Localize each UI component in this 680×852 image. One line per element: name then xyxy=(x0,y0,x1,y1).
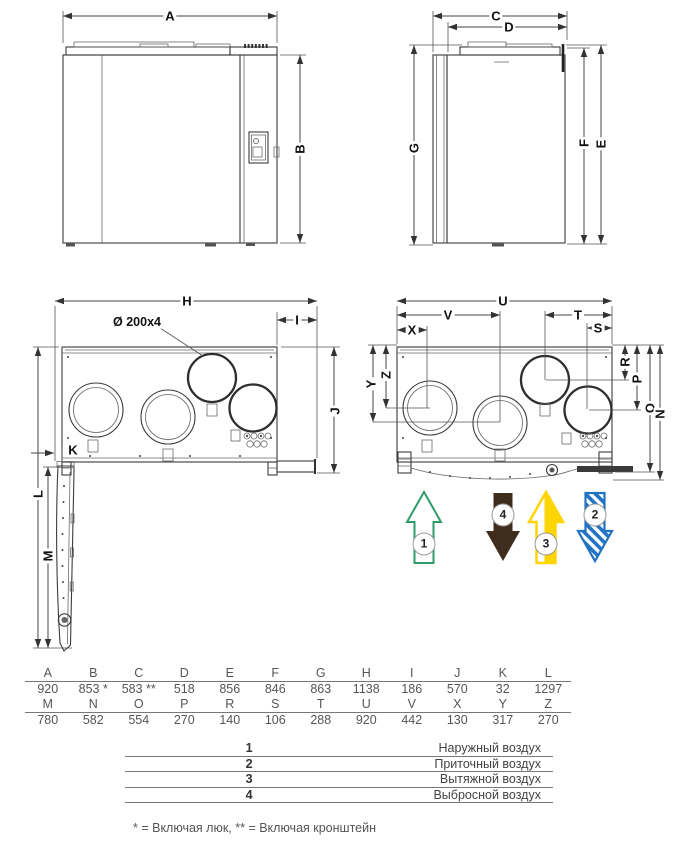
dim-label-f: F xyxy=(578,137,591,149)
legend-label: Выбросной воздух xyxy=(373,788,553,803)
dim-label-n: N xyxy=(654,407,667,420)
control-panel xyxy=(249,132,279,163)
dim-label-g: G xyxy=(408,141,421,155)
dimension-table: A B C D E F G H I J K L 920 853 * 583 **… xyxy=(25,666,571,728)
duct-size-label: Ø 200x4 xyxy=(111,316,163,329)
dim-letter: Y xyxy=(480,697,526,713)
dim-letter: F xyxy=(253,666,299,682)
dim-value: 920 xyxy=(344,713,390,729)
cable-grommets xyxy=(244,433,271,447)
dim-letter: M xyxy=(25,697,71,713)
bracket-flange xyxy=(277,461,315,472)
dim-letter: C xyxy=(116,666,162,682)
dim-value: 853 * xyxy=(71,682,117,698)
airflow-arrows xyxy=(407,492,612,563)
dim-value: 270 xyxy=(162,713,208,729)
dim-value: 920 xyxy=(25,682,71,698)
dim-label-s: S xyxy=(592,322,605,335)
dim-label-p: P xyxy=(631,373,644,386)
dim-letter: V xyxy=(389,697,435,713)
dim-label-e: E xyxy=(595,138,608,151)
dim-value-row: 920 853 * 583 ** 518 856 846 863 1138 18… xyxy=(25,682,571,698)
dim-label-d: D xyxy=(502,21,515,34)
dim-label-h: H xyxy=(180,295,193,308)
dim-letter: P xyxy=(162,697,208,713)
dim-letter: E xyxy=(207,666,253,682)
footnote: * = Включая люк, ** = Включая кронштейн xyxy=(133,821,376,835)
dim-letter: X xyxy=(435,697,481,713)
dim-value: 317 xyxy=(480,713,526,729)
dim-label-i: I xyxy=(293,314,301,327)
airflow-legend: 1 Наружный воздух 2 Приточный воздух 3 В… xyxy=(125,741,553,803)
airflow-number-1: 1 xyxy=(413,533,436,556)
legend-label: Приточный воздух xyxy=(373,757,553,772)
dim-letter: K xyxy=(480,666,526,682)
duct-leader-line xyxy=(160,328,203,356)
dim-letter: Z xyxy=(526,697,572,713)
legend-row: 4 Выбросной воздух xyxy=(125,788,553,804)
dim-letter: S xyxy=(253,697,299,713)
dim-label-c: C xyxy=(489,10,502,23)
legend-label: Вытяжной воздух xyxy=(373,772,553,787)
dim-value: 106 xyxy=(253,713,299,729)
dim-value: 186 xyxy=(389,682,435,698)
dim-letter-row: M N O P R S T U V X Y Z xyxy=(25,697,571,713)
front-view xyxy=(63,11,306,247)
dim-value: 582 xyxy=(71,713,117,729)
dim-value: 288 xyxy=(298,713,344,729)
dim-letter: L xyxy=(526,666,572,682)
mounting-bracket xyxy=(57,462,74,652)
legend-number: 1 xyxy=(125,741,373,756)
dim-value: 270 xyxy=(526,713,572,729)
dim-label-v: V xyxy=(442,309,455,322)
legend-number: 4 xyxy=(125,788,373,803)
dim-label-u: U xyxy=(496,295,509,308)
airflow-number-2: 2 xyxy=(584,504,607,527)
dim-letter: H xyxy=(344,666,390,682)
dim-letter: D xyxy=(162,666,208,682)
top-view-with-bracket xyxy=(31,301,340,651)
dim-value: 140 xyxy=(207,713,253,729)
legend-row: 2 Приточный воздух xyxy=(125,757,553,773)
legend-number: 2 xyxy=(125,757,373,772)
dim-value: 1138 xyxy=(344,682,390,698)
dim-value: 554 xyxy=(116,713,162,729)
dim-letter: N xyxy=(71,697,117,713)
dim-value: 583 ** xyxy=(116,682,162,698)
duct-port xyxy=(141,390,195,444)
dim-letter: J xyxy=(435,666,481,682)
dim-label-j: J xyxy=(329,405,342,416)
dim-value: 1297 xyxy=(526,682,572,698)
bracket-front xyxy=(398,452,633,479)
duct-port xyxy=(230,385,277,432)
dim-label-z: Z xyxy=(380,369,393,381)
legend-row: 3 Вытяжной воздух xyxy=(125,772,553,788)
dim-letter: T xyxy=(298,697,344,713)
dim-value: 570 xyxy=(435,682,481,698)
legend-label: Наружный воздух xyxy=(373,741,553,756)
dim-value: 846 xyxy=(253,682,299,698)
dim-label-m: M xyxy=(42,549,55,564)
dimension-drawing-page: A B C D G F E H I Ø 200x4 J K L M U V T … xyxy=(0,0,680,852)
dim-label-r: R xyxy=(619,355,632,368)
dim-label-t: T xyxy=(572,309,584,322)
legend-row: 1 Наружный воздух xyxy=(125,741,553,757)
dim-label-a: A xyxy=(163,10,176,23)
dim-label-b: B xyxy=(294,142,307,155)
airflow-number-3: 3 xyxy=(535,533,558,556)
duct-port xyxy=(188,354,236,402)
dim-letter: U xyxy=(344,697,390,713)
dim-value: 442 xyxy=(389,713,435,729)
side-view xyxy=(409,11,607,247)
dim-letter: A xyxy=(25,666,71,682)
legend-number: 3 xyxy=(125,772,373,787)
dim-letter: G xyxy=(298,666,344,682)
dim-letter-row: A B C D E F G H I J K L xyxy=(25,666,571,682)
dim-label-l: L xyxy=(32,488,45,500)
dim-value-row: 780 582 554 270 140 106 288 920 442 130 … xyxy=(25,713,571,729)
dim-value: 130 xyxy=(435,713,481,729)
cable-grommets xyxy=(580,433,607,447)
dim-label-y: Y xyxy=(365,378,378,391)
dim-value: 32 xyxy=(480,682,526,698)
dim-value: 863 xyxy=(298,682,344,698)
dim-label-k: K xyxy=(66,444,79,457)
dim-value: 780 xyxy=(25,713,71,729)
dim-value: 856 xyxy=(207,682,253,698)
dim-letter: R xyxy=(207,697,253,713)
dim-letter: I xyxy=(389,666,435,682)
dim-letter: B xyxy=(71,666,117,682)
dim-label-x: X xyxy=(406,324,419,337)
dim-value: 518 xyxy=(162,682,208,698)
dim-letter: O xyxy=(116,697,162,713)
airflow-number-4: 4 xyxy=(492,504,515,527)
duct-port xyxy=(69,383,123,437)
